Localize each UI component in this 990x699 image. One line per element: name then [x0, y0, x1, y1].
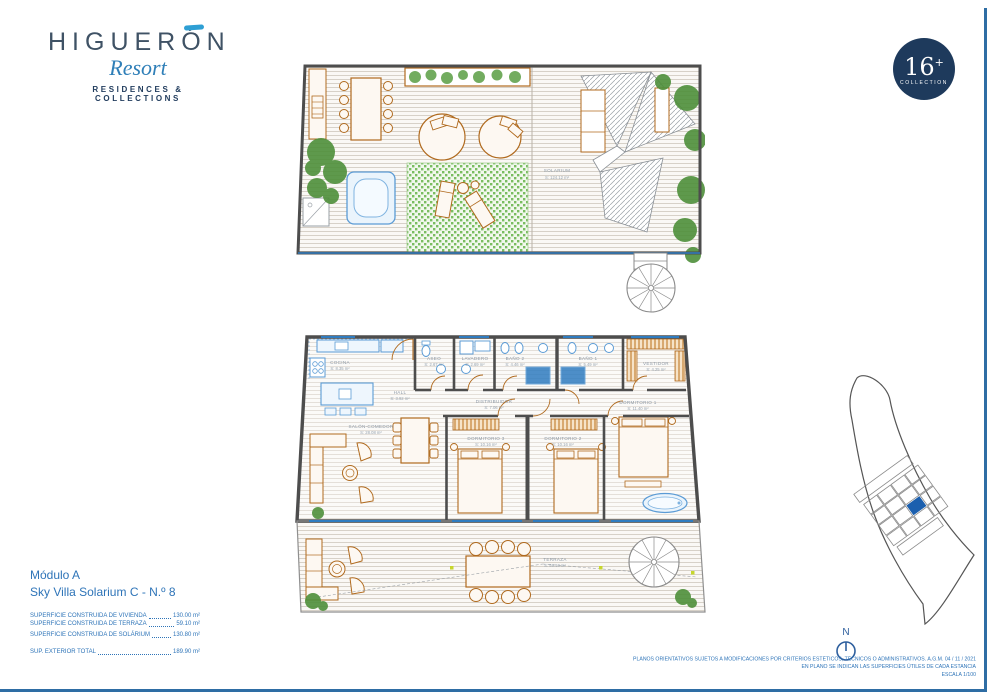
area-row-vivienda: SUPERFICIE CONSTRUIDA DE VIVIENDA 130.00… [30, 612, 200, 620]
room-area-solarium: S: 124.12 m² [545, 175, 570, 180]
terrace-spiral-stair [629, 537, 679, 587]
terrace-dining-set [466, 541, 531, 604]
unit-title-block: Módulo A Sky Villa Solarium C - N.º 8 [30, 568, 280, 599]
logo-title: HIGUERÓN [48, 28, 228, 57]
room-area-bano2: S: 4.46 m² [505, 362, 525, 367]
area-label: SUPERFICIE CONSTRUIDA DE VIVIENDA [30, 612, 147, 620]
logo-title-text: HIGUERÓN [48, 28, 231, 56]
room-label-lavadero: LAVADERO [462, 356, 489, 361]
jacuzzi [347, 172, 395, 224]
room-area-dormitorio2: S: 10.16 m² [552, 442, 574, 447]
dotted-leader [149, 618, 171, 619]
area-label: SUPERFICIE CONSTRUIDA DE SOLÁRIUM [30, 631, 150, 639]
room-label-dormitorio3: DORMITORIO 3 [467, 436, 504, 441]
disclaimer-line-3: ESCALA 1/100 [529, 671, 976, 679]
room-area-bano1: S: 5.49 m² [578, 362, 598, 367]
room-label-terraza: TERRAZA [543, 557, 567, 562]
surface-areas-list: SUPERFICIE CONSTRUIDA DE VIVIENDA 130.00… [30, 612, 200, 656]
room-area-vestidor: S: 4.25 m² [646, 367, 666, 372]
dotted-leader [98, 654, 171, 655]
disclaimer-block: PLANOS ORIENTATIVOS SUJETOS A MODIFICACI… [529, 656, 976, 679]
unit-module: Módulo A [30, 568, 280, 582]
room-label-dormitorio2: DORMITORIO 2 [544, 436, 581, 441]
room-area-dormitorio1: S: 11.40 m² [627, 406, 649, 411]
unit-name: Sky Villa Solarium C - N.º 8 [30, 585, 280, 599]
logo-tagline: RESIDENCES & COLLECTIONS [48, 85, 228, 103]
main-floor-plan: COCINA S: 8.35 m² ASEO S: 2.67 m² LAVADE… [293, 331, 708, 616]
disclaimer-line-2: EN PLANO SE INDICAN LAS SUPERFICIES ÚTIL… [529, 664, 976, 672]
badge-label: COLLECTION [900, 80, 948, 86]
room-area-hall: S: 3.92 m² [390, 396, 410, 401]
bathtub [643, 494, 687, 513]
dotted-leader [152, 637, 171, 638]
planter [405, 68, 530, 86]
area-row-solarium: SUPERFICIE CONSTRUIDA DE SOLÁRIUM 130.80… [30, 631, 200, 639]
room-area-dormitorio3: S: 10.16 m² [475, 442, 497, 447]
room-label-dormitorio1: DORMITORIO 1 [619, 400, 656, 405]
area-row-total: SUP. EXTERIOR TOTAL 189.90 m² [30, 648, 200, 656]
page-border-bottom [0, 689, 987, 692]
room-area-aseo: S: 2.67 m² [424, 362, 444, 367]
area-value: 130.80 m² [173, 631, 200, 639]
site-location-plan [845, 372, 985, 632]
room-label-hall: HALL [394, 390, 407, 395]
room-label-cocina: COCINA [330, 360, 350, 365]
room-area-salon: S: 28.08 m² [360, 430, 382, 435]
lawn-area [407, 163, 528, 253]
badge-number: 16+ [904, 52, 944, 78]
room-label-solarium: SOLARIUM [544, 168, 570, 173]
area-row-terraza: SUPERFICIE CONSTRUIDA DE TERRAZA 59.10 m… [30, 620, 200, 628]
area-value: 59.10 m² [176, 620, 200, 628]
room-area-terraza: S: 59.10 m² [544, 563, 566, 568]
area-label: SUPERFICIE CONSTRUIDA DE TERRAZA [30, 620, 147, 628]
solarium-floor-plan: SOLARIUM S: 124.12 m² [295, 60, 705, 315]
room-label-vestidor: VESTIDOR [643, 361, 669, 366]
bedroom1-furniture [612, 417, 676, 487]
collection-badge: 16+ COLLECTION [893, 38, 955, 100]
disclaimer-line-1: PLANOS ORIENTATIVOS SUJETOS A MODIFICACI… [529, 656, 976, 664]
compass-n-label: N [842, 627, 849, 638]
room-area-cocina: S: 8.35 m² [330, 366, 350, 371]
spiral-staircase [627, 253, 675, 312]
area-label: SUP. EXTERIOR TOTAL [30, 648, 96, 656]
room-label-salon: SALÓN-COMEDOR [349, 423, 394, 429]
room-label-bano1: BAÑO 1 [579, 355, 598, 361]
logo-script: Resort [48, 55, 228, 81]
brand-logo: HIGUERÓN Resort RESIDENCES & COLLECTIONS [48, 28, 228, 103]
room-label-bano2: BAÑO 2 [506, 355, 525, 361]
dotted-leader [149, 626, 175, 627]
room-area-lavadero: S: 2.69 m² [465, 362, 485, 367]
outdoor-shower [303, 198, 329, 226]
bbq-counter [309, 69, 326, 139]
area-value: 189.90 m² [173, 648, 200, 656]
room-area-distribuidor: S: 7.06 m² [484, 405, 504, 410]
salon-plant [312, 507, 324, 519]
room-label-aseo: ASEO [427, 356, 441, 361]
room-label-distribuidor: DISTRIBUIDOR [476, 399, 513, 404]
area-value: 130.00 m² [173, 612, 200, 620]
